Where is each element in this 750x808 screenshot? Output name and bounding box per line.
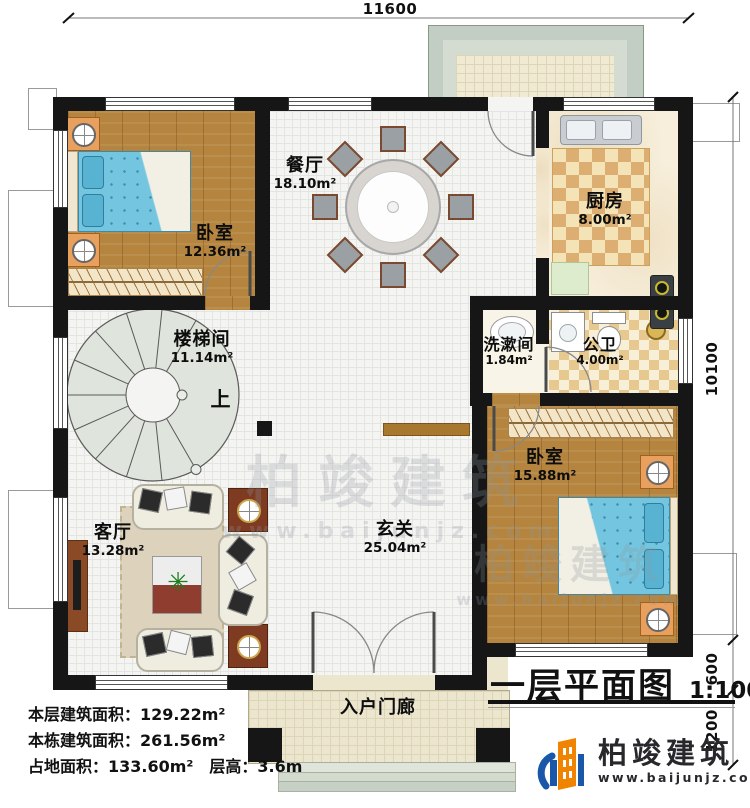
stat-line: 本栋建筑面积：261.56m² bbox=[28, 728, 302, 754]
lamp-icon bbox=[72, 239, 96, 263]
room-label-living: 客厅 13.28m² bbox=[60, 523, 166, 559]
porch-pillar-right bbox=[476, 728, 510, 762]
console-table bbox=[383, 423, 470, 436]
room-area: 4.00m² bbox=[560, 354, 640, 368]
room-label-kitchen: 厨房 8.00m² bbox=[555, 192, 655, 228]
nightstand bbox=[640, 602, 674, 636]
stat-line: 本层建筑面积：129.22m² bbox=[28, 702, 302, 728]
wardrobe bbox=[68, 268, 203, 296]
ac-platform-outline-left bbox=[8, 490, 55, 609]
wall bbox=[540, 393, 693, 406]
end-table bbox=[228, 624, 268, 668]
room-area: 11.14m² bbox=[142, 351, 262, 367]
room-area: 12.36m² bbox=[155, 245, 275, 261]
room-label-washroom: 洗漱间 1.84m² bbox=[478, 336, 540, 368]
back-door-threshold bbox=[488, 97, 533, 111]
room-area: 18.10m² bbox=[252, 177, 358, 193]
lamp-icon bbox=[646, 608, 670, 632]
room-name: 客厅 bbox=[60, 523, 166, 544]
room-label-stairwell: 楼梯间 11.14m² bbox=[142, 330, 262, 366]
room-name: 餐厅 bbox=[252, 156, 358, 177]
wall bbox=[255, 111, 270, 310]
up-text: 上 bbox=[206, 388, 236, 411]
burner bbox=[655, 281, 669, 295]
window bbox=[105, 97, 235, 111]
nightstand bbox=[640, 455, 674, 489]
window bbox=[563, 97, 655, 111]
stair-up-label: 上 bbox=[206, 388, 236, 411]
company-name: 柏竣建筑 bbox=[598, 736, 750, 770]
window bbox=[678, 318, 693, 384]
window bbox=[288, 97, 372, 111]
entry-threshold bbox=[313, 675, 435, 690]
room-area: 25.04m² bbox=[348, 541, 442, 557]
toilet-tank bbox=[592, 312, 626, 324]
porch-step-3 bbox=[278, 781, 516, 792]
pillow bbox=[644, 549, 664, 589]
bed-headboard bbox=[670, 497, 678, 595]
dim-right-total: 10100 bbox=[703, 329, 721, 409]
column bbox=[257, 421, 272, 436]
stat-line: 占地面积：133.60m² 层高：3.6m bbox=[28, 754, 302, 780]
chair bbox=[312, 194, 338, 220]
room-label-porch: 入户门廊 bbox=[318, 698, 438, 719]
sink-basin bbox=[566, 120, 596, 140]
dim-top: 11600 bbox=[330, 0, 450, 18]
wall bbox=[472, 643, 487, 690]
plant-icon: ✳ bbox=[163, 568, 193, 598]
room-label-foyer: 玄关 25.04m² bbox=[348, 520, 442, 556]
nightstand bbox=[66, 233, 100, 267]
room-area: 13.28m² bbox=[60, 544, 166, 560]
wall bbox=[53, 296, 205, 310]
room-name: 厨房 bbox=[555, 192, 655, 213]
bay-window-outline bbox=[8, 190, 55, 307]
kitchen-passage bbox=[536, 148, 549, 258]
tv bbox=[73, 560, 81, 610]
area-stats: 本层建筑面积：129.22m² 本栋建筑面积：261.56m² 占地面积：133… bbox=[28, 702, 302, 780]
lamp-icon bbox=[72, 123, 96, 147]
sofa-cushion bbox=[138, 488, 163, 513]
sofa-cushion bbox=[191, 635, 214, 658]
pillow bbox=[644, 503, 664, 543]
window bbox=[53, 130, 68, 208]
fridge bbox=[551, 262, 589, 295]
room-name: 卧室 bbox=[490, 448, 600, 469]
pillow bbox=[82, 194, 104, 227]
company-logo: 柏竣建筑 www.baijunjz.com bbox=[536, 736, 750, 794]
room-label-bedroom2: 卧室 15.88m² bbox=[490, 448, 600, 484]
dining-table-center bbox=[387, 201, 399, 213]
window bbox=[515, 643, 648, 657]
chair bbox=[380, 126, 406, 152]
back-porch-floor bbox=[456, 55, 614, 97]
title-underline bbox=[488, 700, 735, 704]
sink-basin bbox=[602, 120, 632, 140]
company-website: www.baijunjz.com bbox=[598, 770, 750, 785]
sofa-cushion bbox=[189, 491, 213, 515]
flue-outline bbox=[688, 103, 740, 142]
title-underline-thin bbox=[488, 707, 735, 708]
room-name: 洗漱间 bbox=[478, 336, 540, 354]
window bbox=[95, 675, 228, 690]
room-label-bathroom: 公卫 4.00m² bbox=[560, 336, 640, 368]
room-name: 卧室 bbox=[155, 224, 275, 245]
end-table bbox=[228, 488, 268, 532]
room-name: 入户门廊 bbox=[318, 698, 438, 719]
sofa-cushion bbox=[163, 486, 187, 510]
window bbox=[53, 337, 68, 429]
logo-icon bbox=[536, 736, 590, 794]
room-area: 15.88m² bbox=[490, 469, 600, 485]
wall bbox=[250, 296, 270, 310]
room-area: 1.84m² bbox=[478, 354, 540, 368]
lamp-icon bbox=[237, 635, 261, 659]
chair bbox=[448, 194, 474, 220]
room-area: 8.00m² bbox=[555, 213, 655, 229]
pillow bbox=[82, 156, 104, 189]
nightstand bbox=[66, 117, 100, 151]
floor-plan: ✳ bbox=[0, 0, 750, 808]
wall bbox=[470, 296, 693, 310]
lamp-icon bbox=[237, 499, 261, 523]
wall bbox=[536, 111, 549, 148]
sofa-cushion bbox=[142, 632, 167, 657]
wall bbox=[470, 393, 492, 406]
bedroom2-door-threshold bbox=[492, 393, 540, 406]
chair bbox=[380, 262, 406, 288]
room-name: 玄关 bbox=[348, 520, 442, 541]
room-name: 公卫 bbox=[560, 336, 640, 354]
wardrobe bbox=[508, 408, 674, 438]
lamp-icon bbox=[646, 461, 670, 485]
room-label-dining: 餐厅 18.10m² bbox=[252, 156, 358, 192]
wall bbox=[472, 406, 487, 643]
room-name: 楼梯间 bbox=[142, 330, 262, 351]
ac-platform-outline-right bbox=[688, 553, 737, 635]
room-label-bedroom1: 卧室 12.36m² bbox=[155, 224, 275, 260]
